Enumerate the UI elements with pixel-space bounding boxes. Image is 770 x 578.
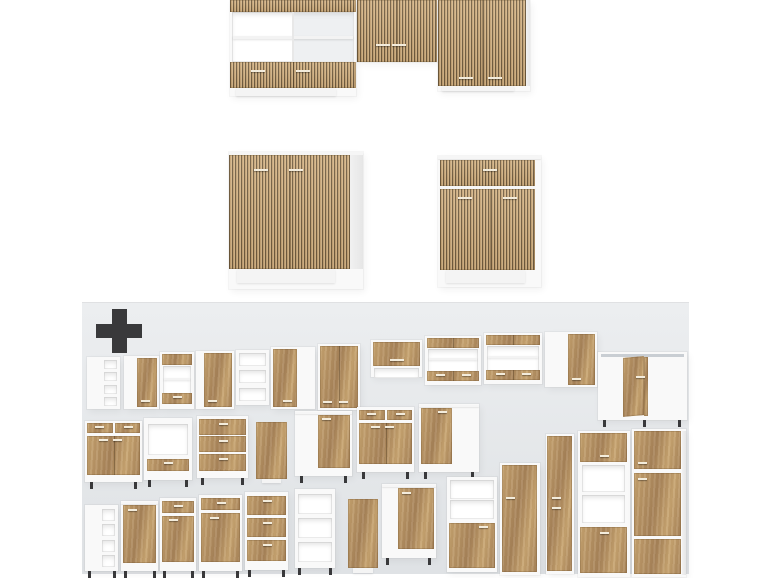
cabinet-shelves-base bbox=[295, 489, 335, 568]
wood-front bbox=[580, 433, 627, 462]
handle bbox=[479, 526, 488, 528]
handle bbox=[458, 197, 472, 199]
top-edge bbox=[121, 502, 158, 504]
door-seam bbox=[339, 346, 340, 408]
open-shelf bbox=[163, 366, 191, 393]
plinth bbox=[446, 270, 525, 283]
plinth bbox=[236, 88, 336, 96]
leg bbox=[329, 568, 332, 575]
door-seam bbox=[513, 370, 514, 380]
plinth bbox=[262, 479, 282, 483]
door-seam bbox=[290, 155, 291, 269]
wood-front bbox=[634, 539, 681, 575]
leg bbox=[424, 472, 427, 479]
cabinet-drawer-door-base bbox=[85, 421, 142, 482]
cabinet-wall-door bbox=[124, 356, 159, 409]
cabinet-set-upper-right bbox=[438, 0, 530, 91]
open-shelf bbox=[487, 346, 539, 370]
open-shelf bbox=[104, 385, 118, 394]
divider bbox=[292, 12, 294, 62]
leg bbox=[124, 571, 127, 578]
open-shelf bbox=[102, 555, 116, 567]
leg bbox=[282, 570, 285, 577]
handle bbox=[219, 458, 228, 460]
leg bbox=[113, 571, 116, 578]
open-shelf bbox=[148, 424, 188, 455]
cabinet-drawers3 bbox=[197, 416, 248, 478]
handle bbox=[173, 396, 182, 398]
wood-front bbox=[502, 465, 537, 572]
leg bbox=[678, 420, 681, 427]
leg bbox=[88, 571, 91, 578]
door-seam bbox=[397, 0, 398, 62]
handle bbox=[402, 492, 411, 494]
wood-front bbox=[623, 356, 644, 417]
slat-front bbox=[230, 0, 356, 12]
open-shelf bbox=[582, 495, 625, 523]
wood-front bbox=[547, 436, 572, 571]
cabinet-set-upper-mid bbox=[357, 0, 437, 62]
leg bbox=[344, 476, 347, 483]
leg bbox=[185, 480, 188, 487]
wood-front bbox=[318, 415, 350, 468]
handle bbox=[390, 359, 404, 361]
leg bbox=[428, 558, 431, 565]
open-shelf bbox=[374, 368, 419, 378]
handle bbox=[113, 439, 122, 441]
wood-front bbox=[204, 353, 232, 407]
handle bbox=[438, 411, 447, 413]
handle bbox=[99, 439, 108, 441]
cabinet-drawer-door-base bbox=[357, 407, 414, 472]
handle bbox=[459, 77, 473, 79]
cabinet-door-base bbox=[121, 501, 158, 571]
wood-front bbox=[273, 349, 297, 407]
leg bbox=[248, 570, 251, 577]
handle bbox=[552, 507, 561, 509]
slat-front bbox=[440, 189, 535, 270]
leg bbox=[300, 476, 303, 483]
handle bbox=[141, 400, 150, 402]
leg bbox=[153, 571, 156, 578]
handle bbox=[210, 517, 219, 519]
leg bbox=[90, 482, 93, 489]
cabinet-drawer-door-base bbox=[199, 495, 242, 571]
cabinet-wall-door bbox=[318, 344, 360, 410]
handle bbox=[496, 373, 505, 375]
handle bbox=[636, 376, 645, 378]
wood-front bbox=[449, 523, 495, 569]
cabinet-tall-fridge bbox=[632, 429, 686, 577]
door-seam bbox=[453, 371, 454, 381]
wood-front bbox=[199, 419, 246, 435]
open-shelf bbox=[239, 353, 266, 366]
wood-front bbox=[348, 499, 378, 568]
open-shelf bbox=[298, 542, 332, 562]
cabinet-cubbies bbox=[87, 357, 120, 409]
handle bbox=[600, 455, 609, 457]
handle bbox=[436, 374, 445, 376]
handle bbox=[503, 197, 517, 199]
wood-front bbox=[162, 354, 192, 365]
open-shelf bbox=[298, 494, 332, 514]
cabinet-door-base bbox=[419, 404, 479, 472]
cabinet-shelves bbox=[236, 350, 269, 405]
handle bbox=[323, 401, 332, 403]
wood-front bbox=[147, 459, 189, 471]
cabinet-half-shelf-door bbox=[447, 477, 497, 572]
leg bbox=[406, 472, 409, 479]
open-shelf bbox=[450, 480, 494, 499]
leg bbox=[241, 478, 244, 485]
open-shelf bbox=[104, 360, 118, 369]
leg bbox=[191, 571, 194, 578]
open-shelf bbox=[428, 349, 478, 373]
wood-front bbox=[199, 454, 246, 471]
handle bbox=[488, 77, 502, 79]
plinth bbox=[353, 568, 372, 573]
handle bbox=[600, 532, 609, 534]
cabinet-band-open-drawer bbox=[484, 333, 542, 384]
leg bbox=[163, 571, 166, 578]
wood-front bbox=[634, 473, 681, 535]
cabinet-drawers3 bbox=[245, 492, 288, 570]
leg bbox=[134, 482, 137, 489]
cabinet-door-base bbox=[382, 484, 436, 558]
handle bbox=[219, 440, 228, 442]
shelf bbox=[488, 356, 538, 358]
handle bbox=[289, 169, 303, 171]
top-edge bbox=[419, 405, 479, 407]
plinth bbox=[237, 269, 335, 283]
shelf bbox=[429, 358, 477, 360]
wood-front bbox=[421, 408, 452, 464]
cabinet-cubbies-base bbox=[85, 505, 118, 571]
leg bbox=[386, 558, 389, 565]
door-seam bbox=[513, 335, 514, 345]
open-shelf bbox=[104, 372, 118, 381]
cabinet-door-base bbox=[295, 411, 352, 476]
cabinet-scene bbox=[0, 0, 770, 578]
door-seam bbox=[490, 189, 491, 270]
cabinet-tall-oven bbox=[578, 431, 630, 577]
door-edge bbox=[644, 357, 648, 416]
handle bbox=[376, 44, 390, 46]
cabinet-band-open-drawer bbox=[425, 336, 481, 385]
wood-front bbox=[162, 516, 194, 563]
leg bbox=[148, 480, 151, 487]
handle bbox=[638, 478, 647, 480]
cabinet-panel bbox=[255, 422, 288, 484]
handle bbox=[254, 169, 268, 171]
cabinet-oven-open bbox=[144, 418, 192, 480]
slat-front bbox=[440, 160, 535, 186]
handle bbox=[128, 509, 137, 511]
cabinet-panel bbox=[347, 499, 379, 574]
leg bbox=[236, 571, 239, 578]
wood-front bbox=[247, 518, 286, 538]
handle bbox=[385, 426, 394, 428]
handle bbox=[95, 426, 104, 428]
handle bbox=[263, 500, 272, 502]
open-shelf bbox=[102, 540, 116, 552]
cabinet-lift-door bbox=[371, 340, 422, 377]
handle bbox=[208, 400, 217, 402]
leg bbox=[202, 571, 205, 578]
open-shelf bbox=[102, 524, 116, 536]
handle bbox=[506, 497, 515, 499]
leg bbox=[362, 472, 365, 479]
handle bbox=[522, 373, 531, 375]
open-shelf bbox=[298, 518, 332, 538]
plinth bbox=[442, 86, 514, 91]
cabinet-wall-door bbox=[271, 347, 315, 409]
wood-front bbox=[247, 496, 286, 516]
handle bbox=[396, 413, 405, 415]
open-shelf bbox=[239, 388, 266, 401]
shelf bbox=[164, 378, 190, 380]
cabinet-band-open-drawer bbox=[160, 352, 194, 409]
leg bbox=[643, 420, 646, 427]
cabinet-tall-door bbox=[500, 463, 540, 575]
door-seam bbox=[293, 62, 294, 88]
leg bbox=[298, 568, 301, 575]
handle bbox=[251, 70, 265, 72]
wood-front bbox=[256, 422, 287, 479]
wood-front bbox=[201, 513, 240, 562]
top-edge bbox=[295, 412, 352, 414]
handle bbox=[219, 423, 228, 425]
handle bbox=[169, 519, 178, 521]
handle bbox=[371, 426, 380, 428]
cabinet-tall-pantry bbox=[546, 434, 574, 574]
wood-front bbox=[373, 342, 420, 366]
handle bbox=[483, 169, 497, 171]
door-seam bbox=[453, 338, 454, 348]
handle bbox=[217, 502, 226, 504]
handle bbox=[322, 418, 331, 420]
wood-front bbox=[201, 498, 240, 510]
handle bbox=[174, 505, 183, 507]
side-panel bbox=[526, 0, 530, 86]
cabinet-wall-door bbox=[196, 351, 234, 409]
wood-front bbox=[162, 393, 192, 404]
top-edge bbox=[382, 485, 436, 487]
door-seam bbox=[482, 0, 483, 86]
handle bbox=[296, 70, 310, 72]
cabinet-drawer-base bbox=[438, 156, 541, 287]
cabinet-wall-door bbox=[545, 332, 597, 387]
handle bbox=[552, 497, 561, 499]
door-seam bbox=[114, 436, 115, 475]
wood-front bbox=[162, 501, 194, 513]
handle bbox=[263, 522, 272, 524]
handle bbox=[283, 400, 292, 402]
cabinet-corner bbox=[598, 352, 687, 420]
handle bbox=[367, 413, 376, 415]
handle bbox=[124, 426, 133, 428]
wood-front bbox=[199, 436, 246, 452]
open-shelf bbox=[102, 509, 116, 521]
side-panel bbox=[350, 155, 363, 269]
leg bbox=[201, 478, 204, 485]
leg bbox=[603, 420, 606, 427]
side-panel bbox=[682, 431, 686, 575]
handle bbox=[638, 462, 647, 464]
handle bbox=[572, 378, 581, 380]
handle bbox=[339, 401, 348, 403]
open-shelf bbox=[582, 465, 625, 493]
handle bbox=[392, 44, 406, 46]
wood-front bbox=[123, 505, 156, 562]
handle bbox=[462, 374, 471, 376]
cabinet-sink-base bbox=[229, 152, 363, 289]
door-seam bbox=[386, 423, 387, 465]
handle bbox=[263, 544, 272, 546]
cabinet-drawer-door-base bbox=[160, 498, 196, 571]
wood-front bbox=[398, 488, 434, 549]
cabinet-set-upper-left bbox=[230, 0, 356, 96]
product-image bbox=[0, 0, 770, 578]
open-shelf bbox=[239, 370, 266, 383]
top-edge bbox=[438, 156, 541, 159]
handle bbox=[164, 462, 173, 464]
open-shelf bbox=[450, 500, 494, 519]
open-shelf bbox=[104, 397, 118, 406]
